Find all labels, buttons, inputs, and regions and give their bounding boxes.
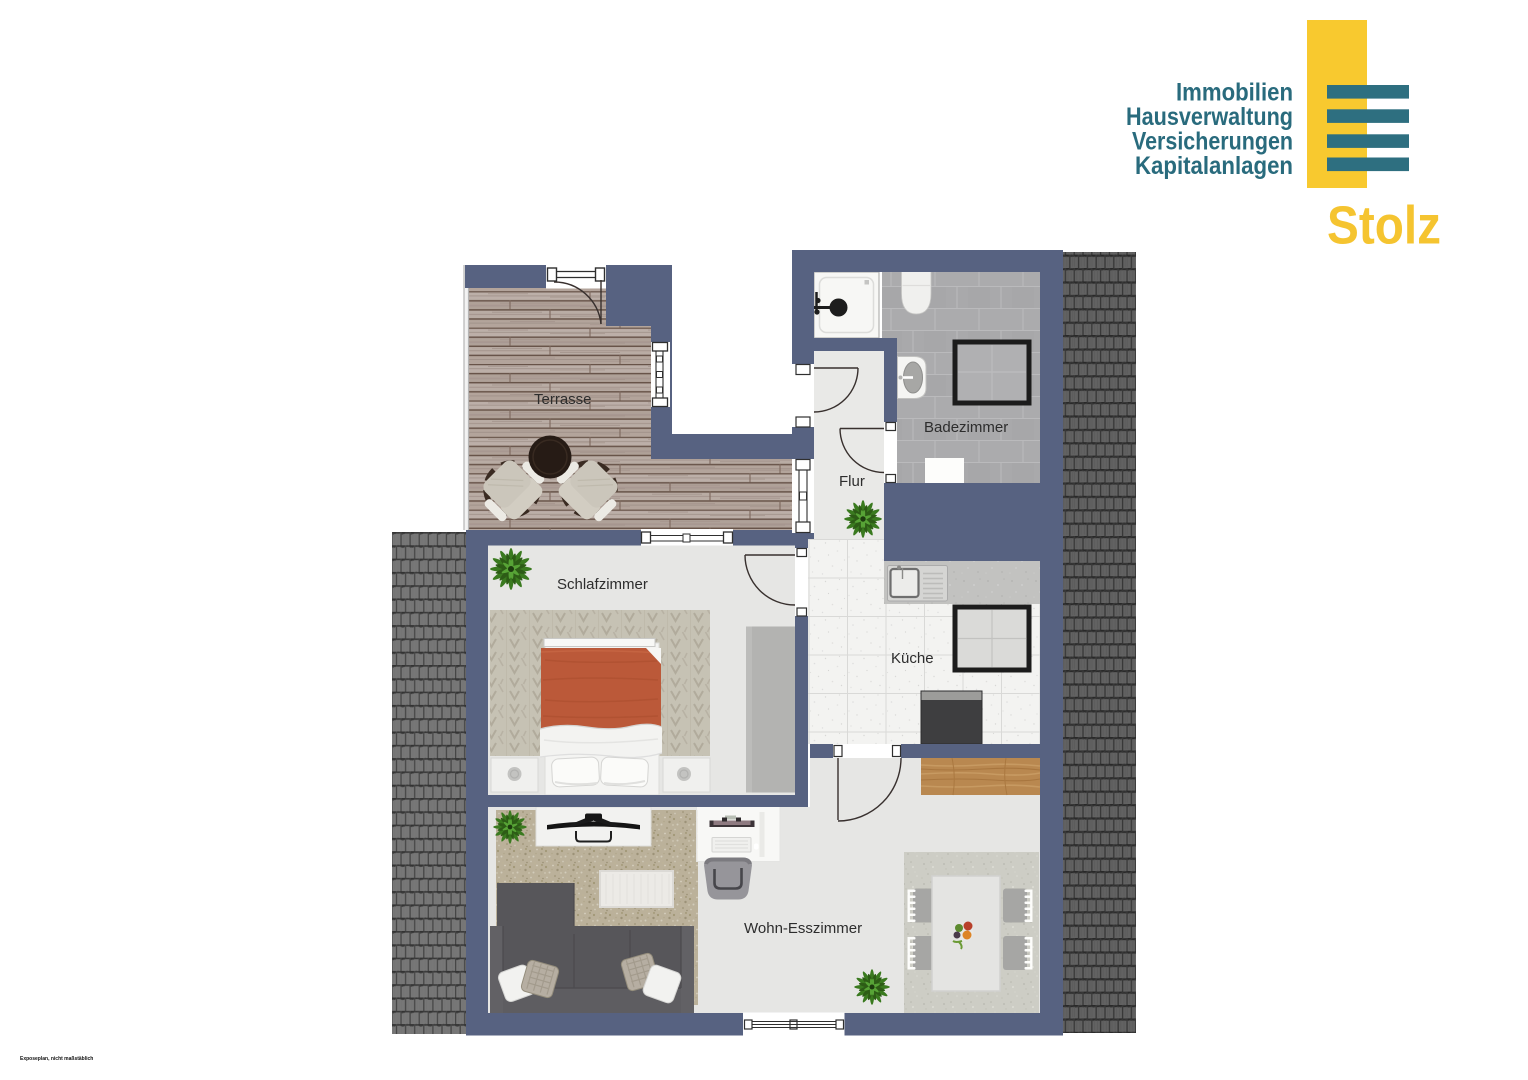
svg-text:Küche: Küche [891,650,934,667]
svg-text:Badezimmer: Badezimmer [924,419,1008,436]
svg-text:Terrasse: Terrasse [534,391,592,408]
svg-text:Exposeplan, nicht maßstäblich: Exposeplan, nicht maßstäblich [20,1056,93,1062]
svg-text:Schlafzimmer: Schlafzimmer [557,576,648,593]
svg-text:Kapitalanlagen: Kapitalanlagen [1135,152,1293,180]
svg-text:Stolz: Stolz [1327,196,1441,256]
svg-text:Flur: Flur [839,473,865,490]
svg-text:Wohn-Esszimmer: Wohn-Esszimmer [744,920,862,937]
